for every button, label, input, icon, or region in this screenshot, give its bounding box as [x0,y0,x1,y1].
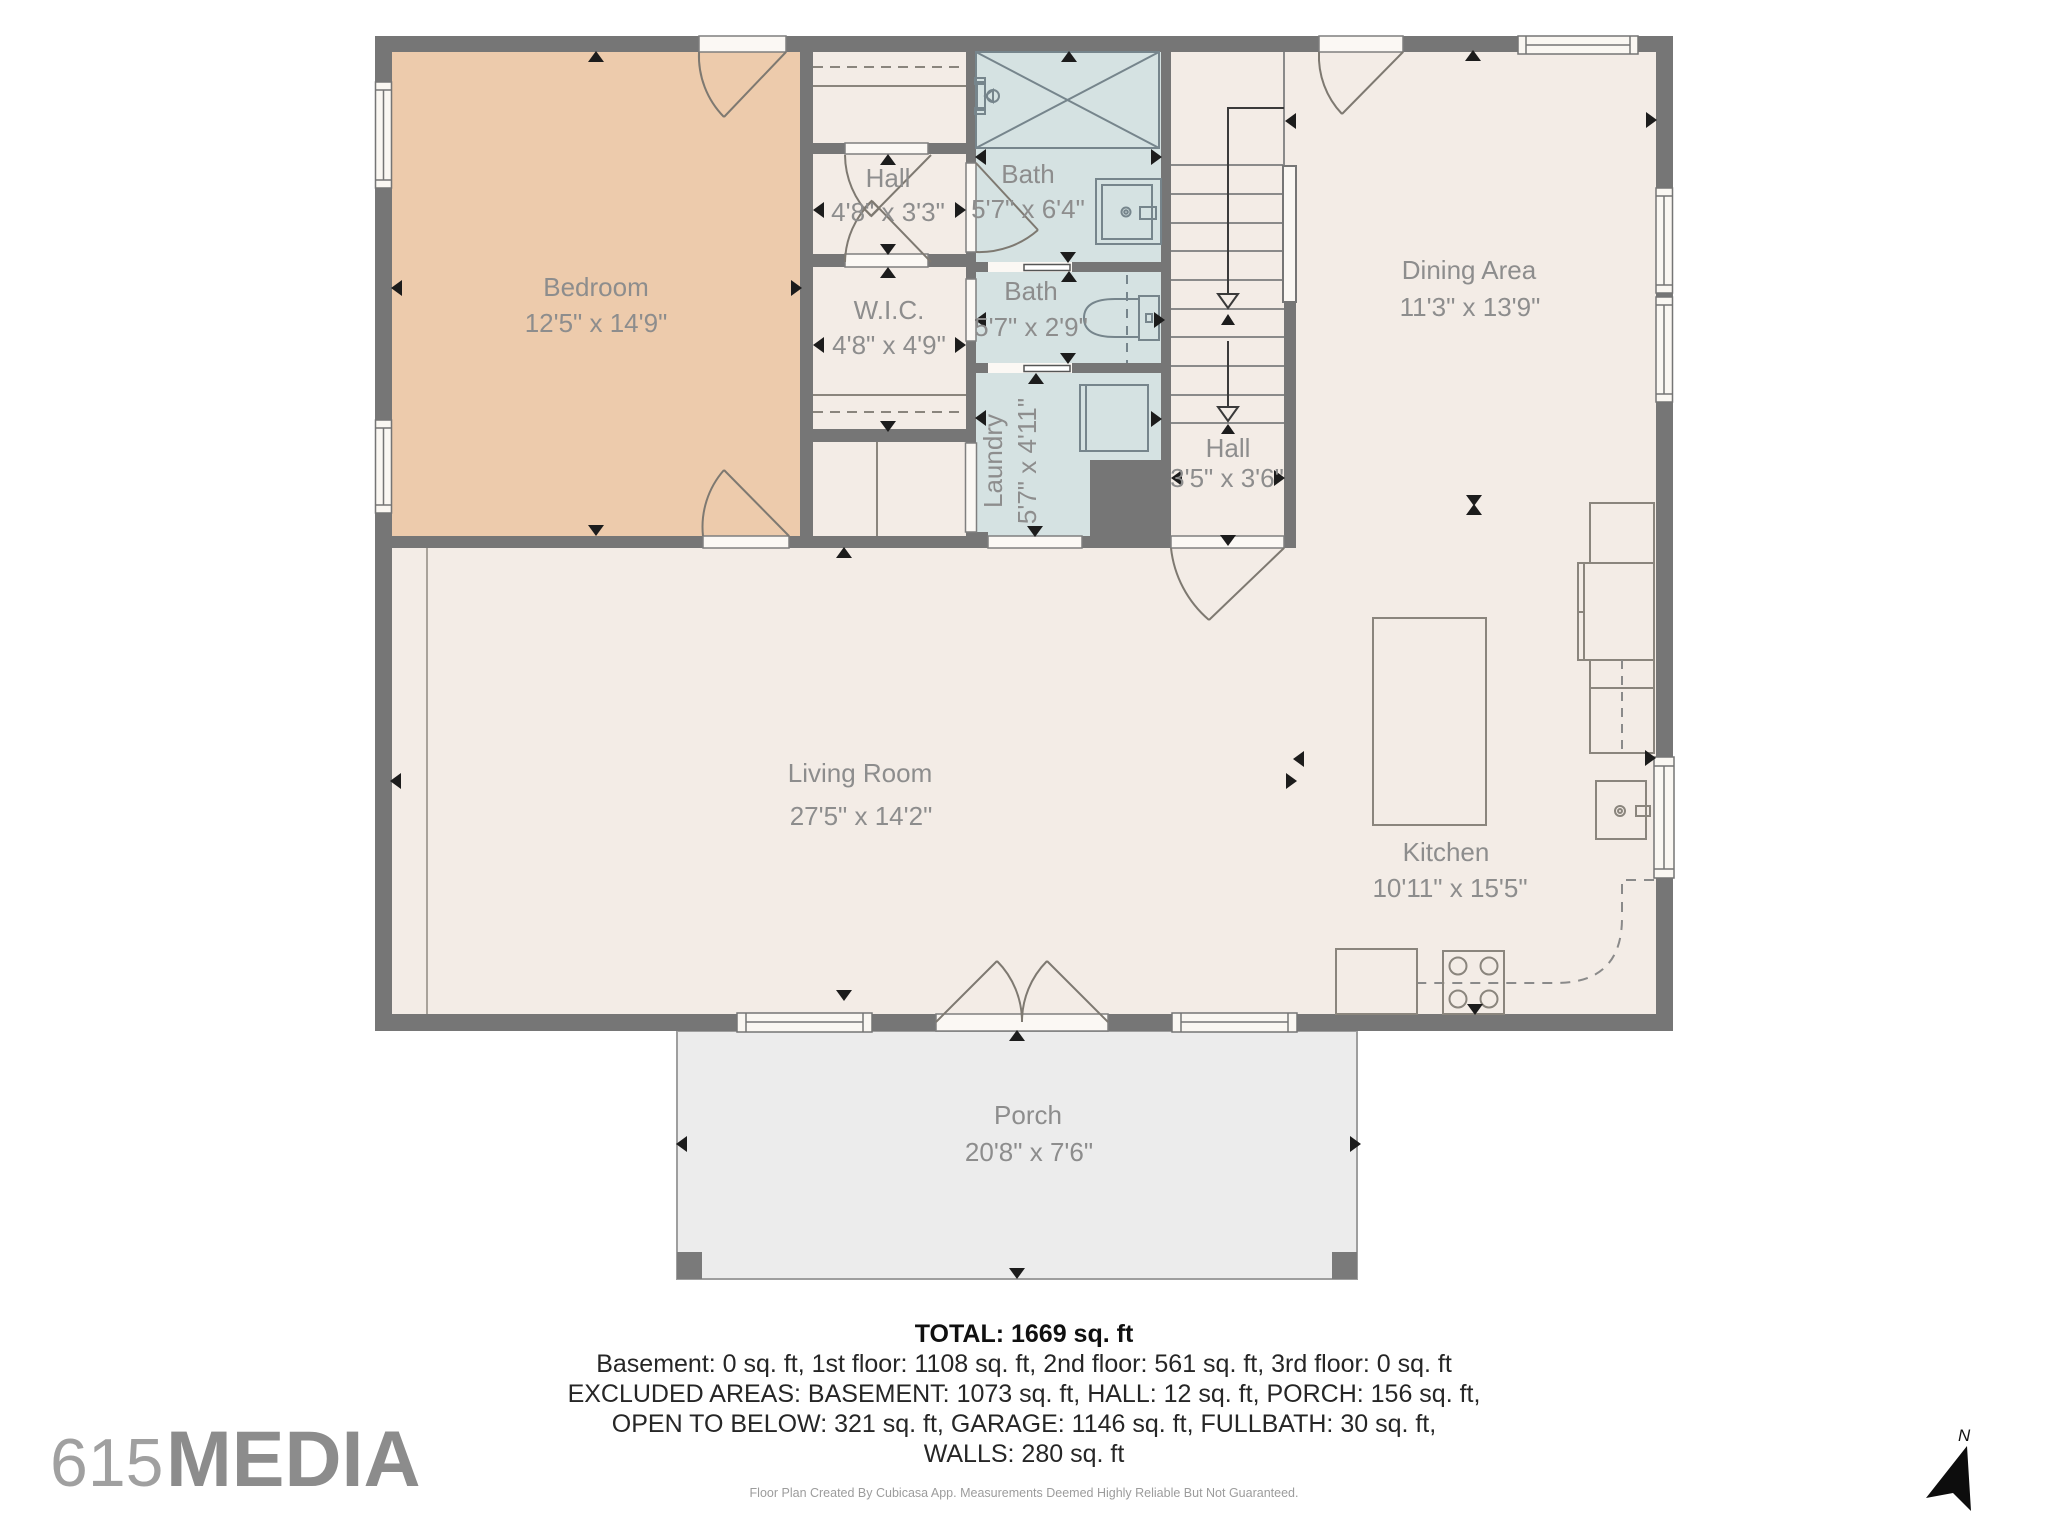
svg-text:MEDIA: MEDIA [166,1414,421,1503]
svg-text:615: 615 [50,1425,163,1501]
svg-text:Basement: 0 sq. ft, 1st floor:: Basement: 0 sq. ft, 1st floor: 1108 sq. … [596,1350,1452,1378]
svg-text:4'8" x 4'9": 4'8" x 4'9" [832,330,946,360]
svg-text:Bedroom: Bedroom [543,272,649,302]
svg-text:Bath: Bath [1001,159,1055,189]
svg-text:WALLS: 280 sq. ft: WALLS: 280 sq. ft [924,1440,1125,1468]
svg-text:5'7" x 6'4": 5'7" x 6'4" [971,194,1085,224]
svg-text:OPEN TO BELOW: 321 sq. ft, GAR: OPEN TO BELOW: 321 sq. ft, GARAGE: 1146 … [612,1410,1436,1438]
svg-text:Hall: Hall [866,163,911,193]
svg-text:Hall: Hall [1206,433,1251,463]
svg-text:EXCLUDED AREAS: BASEMENT: 1073: EXCLUDED AREAS: BASEMENT: 1073 sq. ft, H… [568,1380,1481,1408]
svg-text:20'8" x 7'6": 20'8" x 7'6" [965,1137,1093,1167]
svg-text:11'3" x 13'9": 11'3" x 13'9" [1400,292,1541,322]
svg-text:10'11" x 15'5": 10'11" x 15'5" [1372,873,1527,903]
svg-text:W.I.C.: W.I.C. [854,295,925,325]
svg-text:Living Room: Living Room [788,758,933,788]
svg-text:Porch: Porch [994,1100,1062,1130]
svg-text:Floor Plan Created By Cubicasa: Floor Plan Created By Cubicasa App. Meas… [750,1486,1299,1500]
svg-text:Kitchen: Kitchen [1403,837,1490,867]
svg-text:5'7" x 4'11": 5'7" x 4'11" [1012,398,1042,524]
svg-text:Laundry: Laundry [978,414,1008,508]
svg-text:4'8" x 3'3": 4'8" x 3'3" [831,197,945,227]
svg-text:3'5" x 3'6": 3'5" x 3'6" [1170,463,1284,493]
svg-text:Bath: Bath [1004,276,1058,306]
svg-text:TOTAL: 1669 sq. ft: TOTAL: 1669 sq. ft [915,1320,1134,1348]
svg-text:Dining Area: Dining Area [1402,255,1537,285]
svg-text:12'5" x 14'9": 12'5" x 14'9" [525,308,668,338]
svg-text:N: N [1958,1426,1971,1445]
svg-text:5'7" x 2'9": 5'7" x 2'9" [974,312,1088,342]
svg-text:27'5" x 14'2": 27'5" x 14'2" [790,801,933,831]
